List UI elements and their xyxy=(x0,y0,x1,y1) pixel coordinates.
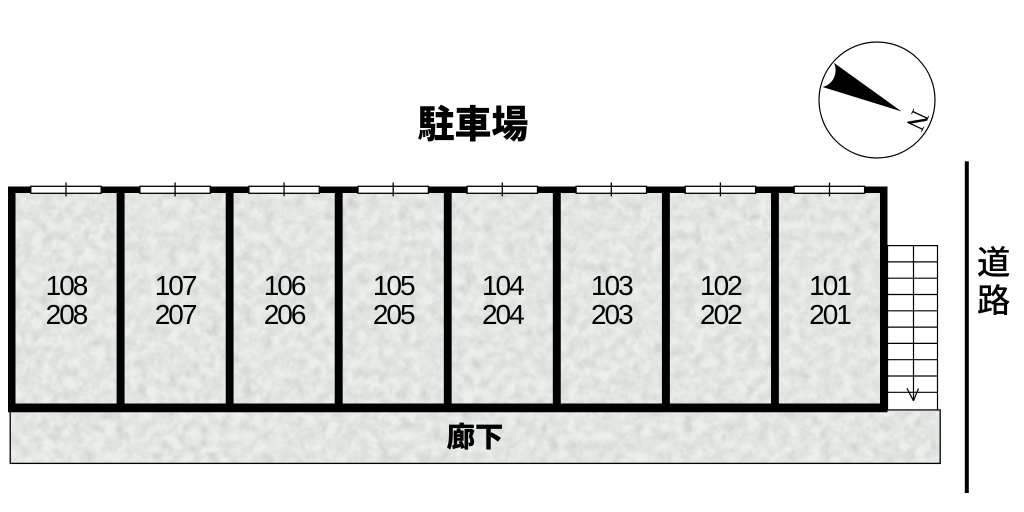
svg-text:203: 203 xyxy=(591,299,633,330)
svg-text:207: 207 xyxy=(155,299,197,330)
svg-text:106: 106 xyxy=(264,270,306,301)
svg-text:107: 107 xyxy=(155,270,197,301)
svg-text:201: 201 xyxy=(809,299,851,330)
svg-text:204: 204 xyxy=(482,299,524,330)
svg-text:101: 101 xyxy=(809,270,851,301)
svg-text:206: 206 xyxy=(264,299,306,330)
svg-text:202: 202 xyxy=(700,299,742,330)
svg-text:105: 105 xyxy=(373,270,415,301)
svg-text:104: 104 xyxy=(482,270,524,301)
svg-text:103: 103 xyxy=(591,270,633,301)
svg-text:102: 102 xyxy=(700,270,742,301)
svg-text:208: 208 xyxy=(46,299,88,330)
svg-text:108: 108 xyxy=(46,270,88,301)
svg-text:205: 205 xyxy=(373,299,415,330)
